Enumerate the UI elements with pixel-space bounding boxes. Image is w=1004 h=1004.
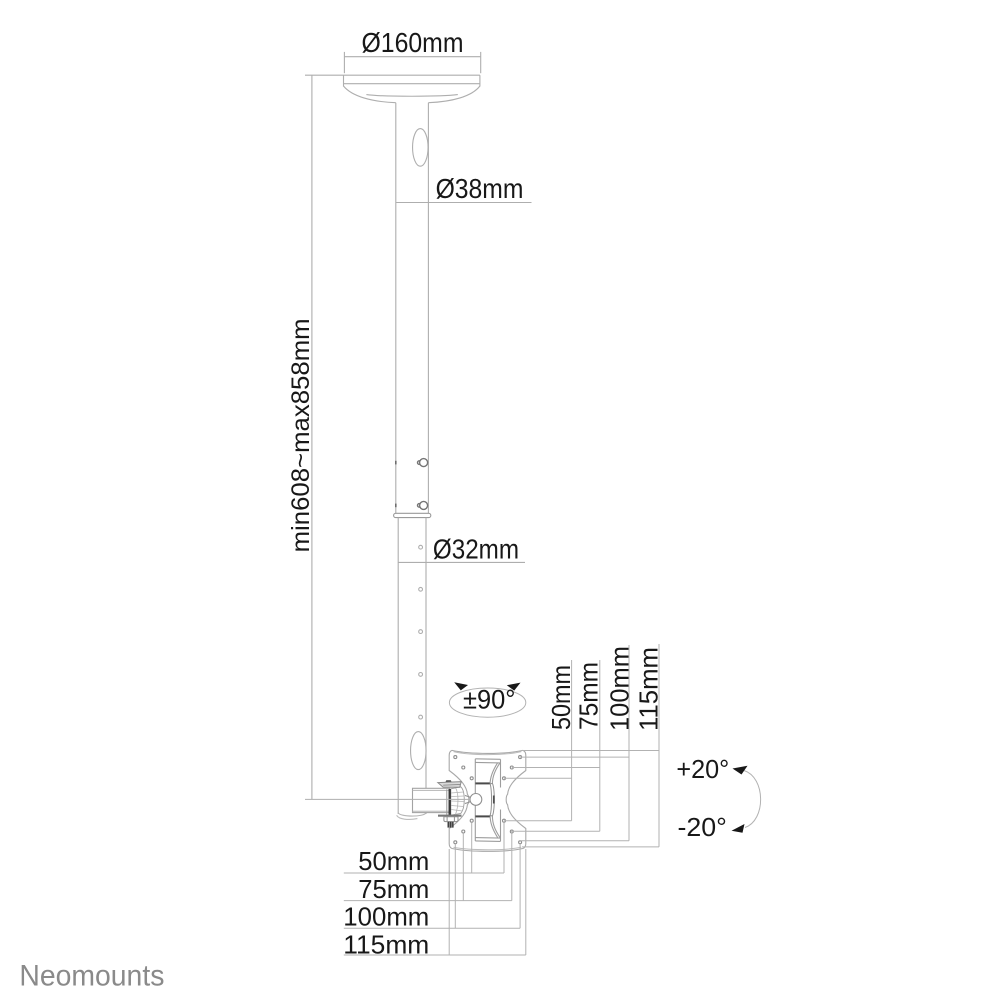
svg-text:75mm: 75mm: [358, 874, 429, 904]
svg-text:Ø32mm: Ø32mm: [433, 534, 519, 565]
svg-text:Ø160mm: Ø160mm: [362, 27, 464, 58]
svg-text:115mm: 115mm: [634, 647, 664, 731]
svg-text:-20°: -20°: [678, 812, 727, 842]
svg-text:Ø38mm: Ø38mm: [436, 173, 524, 204]
svg-text:±90°: ±90°: [463, 685, 516, 715]
svg-text:Neomounts: Neomounts: [19, 959, 164, 992]
svg-text:100mm: 100mm: [605, 646, 635, 731]
svg-text:50mm: 50mm: [358, 846, 429, 876]
svg-text:min608~max858mm: min608~max858mm: [287, 318, 315, 552]
svg-text:100mm: 100mm: [343, 902, 429, 932]
svg-text:75mm: 75mm: [574, 662, 604, 730]
svg-text:50mm: 50mm: [546, 665, 576, 730]
svg-text:115mm: 115mm: [343, 929, 429, 959]
svg-text:+20°: +20°: [676, 754, 729, 784]
